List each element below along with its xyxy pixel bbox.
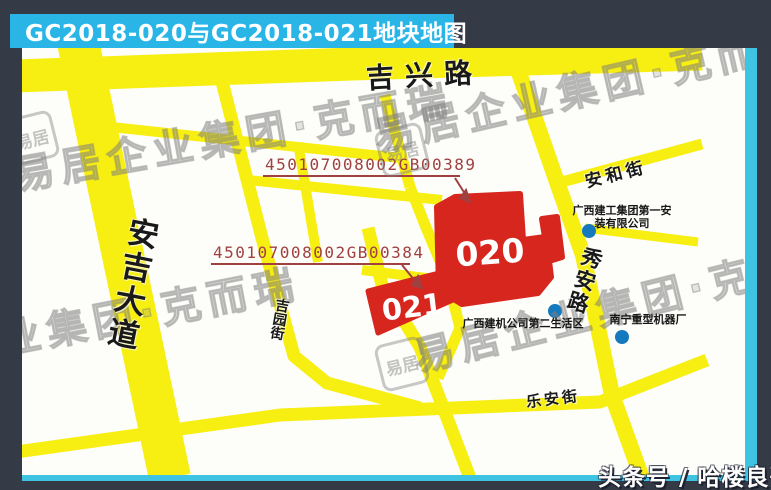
parcel-021-label: 021	[380, 286, 444, 327]
map-canvas: 020 021 450107008002GB00389 450107008002…	[22, 48, 745, 475]
parcel-020-code: 450107008002GB00389	[265, 155, 477, 174]
parcel-021-code: 450107008002GB00384	[213, 243, 425, 262]
poi-label: 广西建工集团第一安 装有限公司	[541, 205, 703, 230]
author-badge: 头条号 / 哈楼良哥	[598, 458, 771, 490]
article-image: GC2018-020与GC2018-021地块地图	[0, 0, 771, 490]
parcel-020-label: 020	[454, 231, 525, 275]
poi-label-line: 广西建机公司第二生活区	[450, 318, 596, 331]
poi-label: 广西建机公司第二生活区	[450, 318, 596, 331]
poi-label: 南宁重型机器厂	[588, 314, 708, 327]
road-label-jixing: 吉兴路	[365, 51, 484, 97]
minor-road-shape	[102, 126, 400, 158]
poi-label-line: 装有限公司	[541, 218, 703, 231]
map-title-bar: GC2018-020与GC2018-021地块地图	[10, 14, 454, 48]
poi-dot	[615, 330, 629, 344]
jixing-road-shape	[22, 54, 702, 76]
poi-label-line: 广西建工集团第一安	[541, 205, 703, 218]
poi-label-line: 南宁重型机器厂	[588, 314, 708, 327]
map-title: GC2018-020与GC2018-021地块地图	[10, 14, 467, 48]
map-edge-strip	[745, 48, 757, 481]
